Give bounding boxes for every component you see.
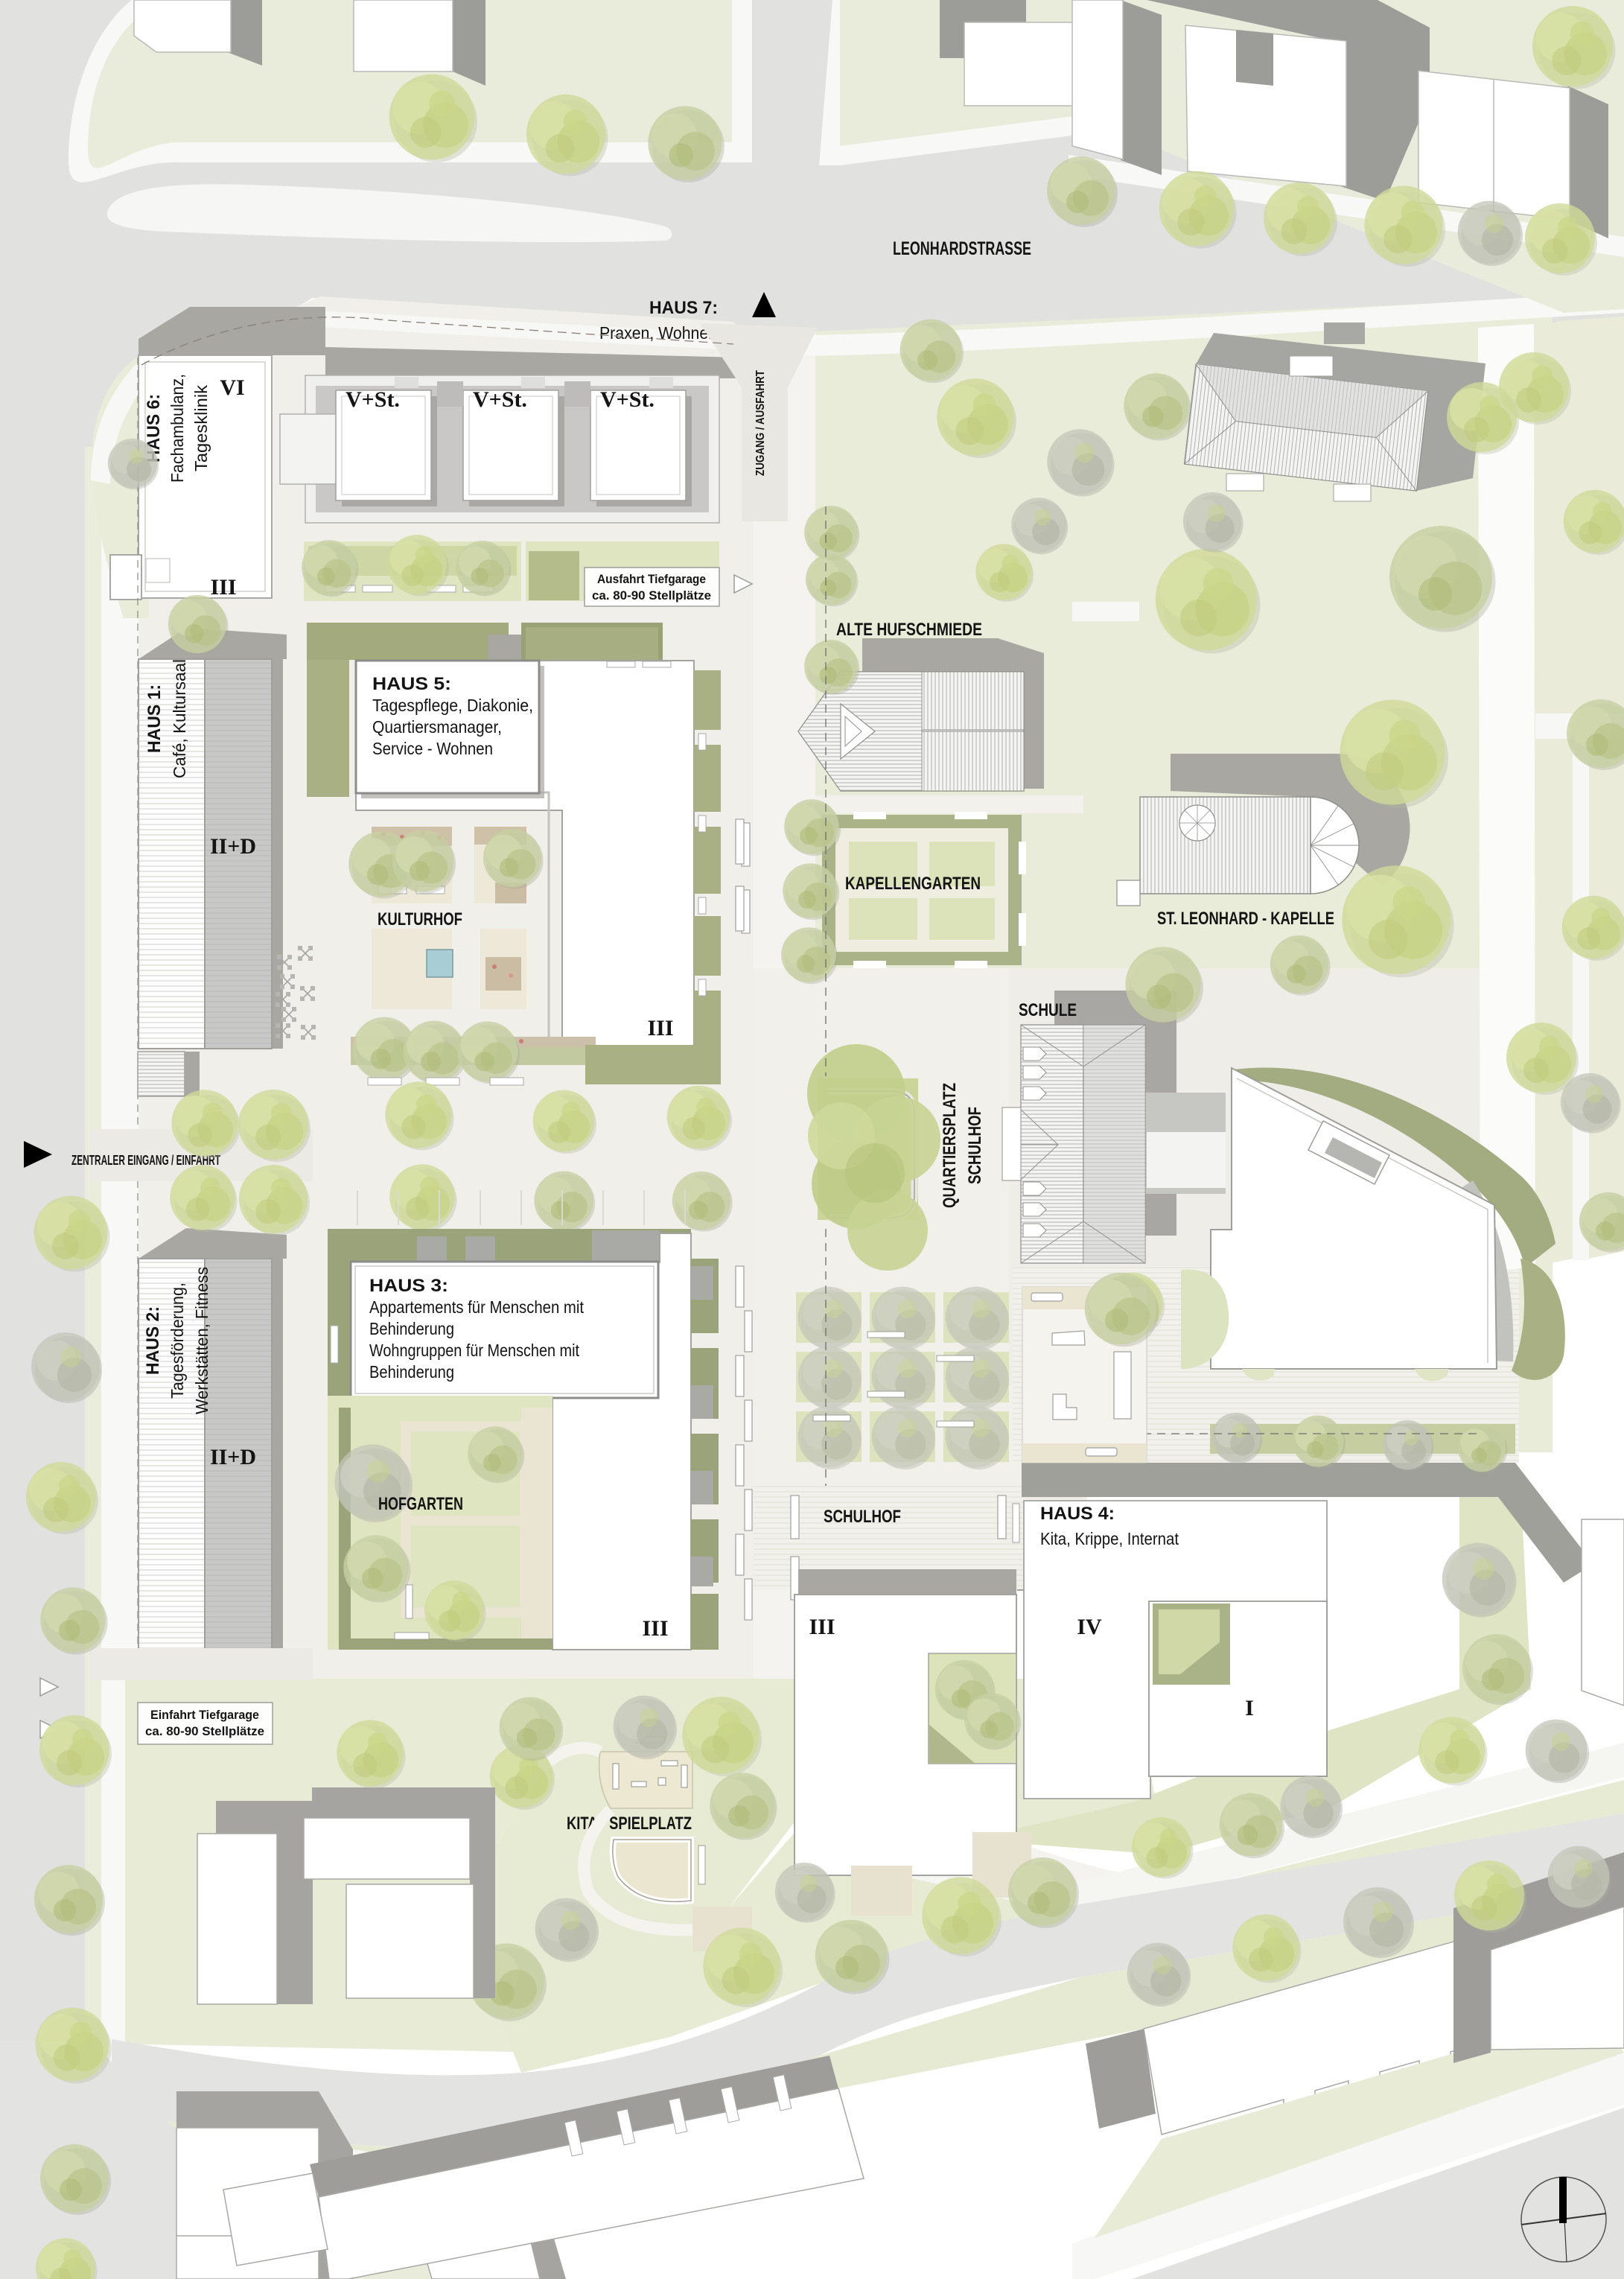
svg-text:KAPELLENGARTEN: KAPELLENGARTEN	[845, 874, 981, 894]
svg-text:Fachambulanz,: Fachambulanz,	[168, 374, 187, 483]
svg-text:VI: VI	[220, 375, 244, 400]
svg-text:III: III	[642, 1616, 668, 1641]
svg-text:Behinderung: Behinderung	[369, 1319, 454, 1338]
svg-text:IV: IV	[1077, 1615, 1102, 1639]
svg-text:Wohngruppen für Menschen mit: Wohngruppen für Menschen mit	[369, 1341, 579, 1360]
svg-text:V+St.: V+St.	[346, 387, 400, 412]
svg-text:LEONHARDSTRASSE: LEONHARDSTRASSE	[893, 238, 1031, 259]
svg-text:SCHULE: SCHULE	[1019, 1000, 1077, 1020]
svg-text:III: III	[647, 1016, 673, 1040]
svg-text:Tagesförderung,: Tagesförderung,	[168, 1282, 187, 1399]
svg-text:HAUS 1:: HAUS 1:	[144, 684, 165, 753]
svg-text:Behinderung: Behinderung	[369, 1362, 454, 1382]
svg-text:III: III	[809, 1615, 835, 1639]
svg-text:Service - Wohnen: Service - Wohnen	[372, 739, 493, 758]
svg-text:I: I	[1245, 1696, 1254, 1720]
svg-text:SCHULHOF: SCHULHOF	[965, 1107, 985, 1184]
svg-text:Einfahrt Tiefgarage: Einfahrt Tiefgarage	[150, 1708, 259, 1722]
svg-text:II+D: II+D	[210, 1445, 256, 1469]
svg-text:V+St.: V+St.	[473, 387, 527, 412]
svg-text:HAUS 4:: HAUS 4:	[1040, 1504, 1115, 1524]
svg-text:HAUS 2:: HAUS 2:	[143, 1306, 163, 1375]
svg-text:ca. 80-90 Stellplätze: ca. 80-90 Stellplätze	[592, 588, 711, 603]
svg-text:KITA - SPIELPLATZ: KITA - SPIELPLATZ	[567, 1814, 692, 1834]
svg-text:V+St.: V+St.	[600, 387, 655, 412]
svg-text:II+D: II+D	[210, 834, 256, 859]
svg-text:III: III	[210, 575, 236, 600]
svg-text:HAUS 3:: HAUS 3:	[369, 1276, 448, 1296]
svg-text:HOFGARTEN: HOFGARTEN	[378, 1494, 463, 1514]
svg-text:Quartiersmanager,: Quartiersmanager,	[372, 717, 502, 737]
svg-text:ZUGANG / AUSFAHRT: ZUGANG / AUSFAHRT	[754, 370, 767, 476]
svg-text:Ausfahrt Tiefgarage: Ausfahrt Tiefgarage	[597, 572, 706, 586]
svg-text:ca. 80-90 Stellplätze: ca. 80-90 Stellplätze	[145, 1724, 264, 1738]
svg-text:Café, Kultursaal: Café, Kultursaal	[170, 659, 189, 778]
svg-text:Werkstätten, Fitness: Werkstätten, Fitness	[192, 1267, 211, 1414]
svg-text:HAUS 7:: HAUS 7:	[649, 298, 718, 318]
svg-text:Kita, Krippe, Internat: Kita, Krippe, Internat	[1040, 1529, 1179, 1548]
svg-text:ST. LEONHARD - KAPELLE: ST. LEONHARD - KAPELLE	[1157, 909, 1334, 929]
svg-text:Tagesklinik: Tagesklinik	[191, 385, 211, 471]
svg-text:ALTE HUFSCHMIEDE: ALTE HUFSCHMIEDE	[836, 620, 982, 640]
svg-text:QUARTIERSPLATZ: QUARTIERSPLATZ	[940, 1083, 960, 1208]
svg-text:Appartements für Menschen mit: Appartements für Menschen mit	[369, 1297, 584, 1317]
svg-text:SCHULHOF: SCHULHOF	[824, 1507, 901, 1527]
svg-text:HAUS 5:: HAUS 5:	[372, 674, 451, 694]
svg-text:KULTURHOF: KULTURHOF	[378, 909, 462, 929]
svg-text:Praxen, Wohnen: Praxen, Wohnen	[599, 323, 717, 343]
svg-text:Tagespflege, Diakonie,: Tagespflege, Diakonie,	[372, 696, 533, 715]
